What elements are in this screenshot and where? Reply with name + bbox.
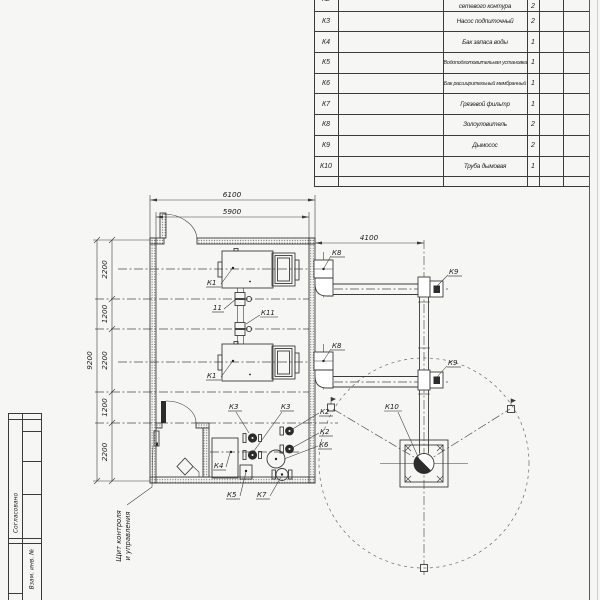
spec-row: К6 Бак расширительный мембранный 1	[314, 73, 589, 94]
tank-k6	[267, 450, 285, 468]
interior-door	[161, 401, 196, 423]
exterior-door	[163, 214, 197, 240]
chimney-k10	[380, 440, 468, 487]
panel-note-line1: Щит контроля	[115, 510, 123, 562]
dim-chain-3: 2200	[100, 351, 109, 370]
spec-row: К10 Труба дымовая 1	[314, 156, 589, 177]
spec-name: Водоподготовительная установка	[443, 53, 527, 74]
spec-qty: 2	[527, 11, 539, 32]
dim-chain-5: 2200	[100, 442, 109, 461]
control-panel-note: Щит контроля и управления	[115, 446, 153, 562]
spec-name: Дымосос	[443, 135, 527, 156]
spec-qty: 2	[527, 135, 539, 156]
spec-name: Грязевой фильтр	[443, 94, 527, 115]
label-k11: К11	[261, 309, 275, 317]
spec-pos: К9	[314, 135, 338, 156]
label-k10: К10	[385, 403, 399, 411]
dimension-left-chain: 2200 1200 2200 1200 2200	[93, 237, 150, 484]
spec-qty: 1	[527, 156, 539, 177]
label-k1-lower: К1	[207, 372, 216, 380]
pump-k2-upper	[280, 427, 294, 436]
spec-pos: К5	[314, 53, 338, 74]
strip-divider	[22, 414, 23, 600]
label-k5: К5	[227, 491, 237, 499]
label-k6: К6	[319, 441, 329, 449]
spec-qty: 1	[527, 73, 539, 94]
label-k8-b: К8	[332, 342, 342, 350]
boiler-piping	[235, 288, 252, 344]
label-k4: К4	[214, 462, 223, 470]
flue-elbow-upper	[315, 278, 333, 296]
pump-k3-upper	[243, 433, 262, 442]
label-11: 11	[213, 304, 222, 312]
spec-row: К3 Насос подпиточный 2	[314, 11, 589, 32]
title-block-replace-inv-label: Взам. инв. №	[29, 549, 36, 590]
guy-anchors	[328, 397, 517, 575]
spec-qty: 1	[527, 53, 539, 74]
label-k2-a: К2	[320, 408, 330, 416]
spec-qty: 1	[527, 94, 539, 115]
floor-drain	[177, 458, 199, 477]
dim-chain-1: 2200	[100, 260, 109, 279]
boiler-k1-lower	[218, 342, 299, 382]
spec-pos: К2	[314, 0, 338, 11]
spec-name: Насос подпиточный	[443, 11, 527, 32]
tank-k4	[212, 438, 238, 478]
label-k1-upper: К1	[207, 279, 216, 287]
dim-9200: 9200	[85, 351, 94, 370]
spec-name: Бак расширительный мембранный	[443, 73, 527, 94]
label-k7: К7	[257, 491, 267, 499]
title-block-agreed-label: Согласовано	[13, 493, 20, 533]
smoke-exhauster-k9-lower	[430, 372, 443, 388]
label-k9-b: К9	[448, 359, 458, 367]
dim-chain-2: 1200	[100, 304, 109, 323]
dim-5900: 5900	[223, 207, 242, 216]
pump-k3-lower	[243, 450, 262, 459]
spec-qty: 1	[527, 32, 539, 53]
spec-pos: К7	[314, 94, 338, 115]
spec-row: К8 Золоуловитель 2	[314, 115, 589, 136]
sheet-edge-line	[597, 0, 598, 600]
spec-pos: К10	[314, 156, 338, 177]
spec-qty: 2	[527, 115, 539, 136]
spec-row: К4 Бак запаса воды 1	[314, 32, 589, 53]
label-k8-a: К8	[332, 249, 342, 257]
spec-name: сетевого контура	[443, 0, 527, 11]
panel-note-line2: и управления	[124, 511, 132, 560]
spec-name: Бак запаса воды	[443, 32, 527, 53]
boiler-k1-upper	[218, 249, 299, 289]
drawing-sheet: 6100 5900 4100 2200 1200	[0, 0, 600, 600]
label-k3-a: К3	[229, 403, 238, 411]
spec-name: Золоуловитель	[443, 115, 527, 136]
dimension-left-overall: 9200	[85, 237, 100, 484]
dimension-flue-offset: 4100	[315, 233, 424, 245]
sheet-frame-line	[589, 0, 590, 600]
building-walls	[150, 213, 315, 483]
dim-4100: 4100	[360, 233, 379, 242]
flue-elbow-lower	[315, 370, 333, 388]
smoke-exhauster-k9-upper	[430, 281, 443, 297]
label-k9-a: К9	[449, 268, 459, 276]
spec-row: К9 Дымосос 2	[314, 135, 589, 156]
spec-designation	[338, 0, 443, 11]
spec-pos: К8	[314, 115, 338, 136]
spec-pos: К3	[314, 11, 338, 32]
spec-row: К7 Грязевой фильтр 1	[314, 94, 589, 115]
spec-pos: К4	[314, 32, 338, 53]
spec-row: К2 сетевого контура 2	[314, 0, 589, 11]
spec-row: К5 Водоподготовительная установка 1	[314, 53, 589, 74]
axis-lines	[95, 240, 510, 565]
title-block-strip: Согласовано Взам. инв. №	[8, 413, 42, 600]
spec-pos: К6	[314, 73, 338, 94]
spec-qty: 2	[527, 0, 539, 11]
spec-spacer-row	[314, 177, 589, 187]
label-k3-b: К3	[281, 403, 290, 411]
specification-table: К2 сетевого контура 2 К3 Насос подпиточн…	[314, 0, 590, 187]
spec-name: Труба дымовая	[443, 156, 527, 177]
dim-chain-4: 1200	[100, 398, 109, 417]
label-k2-b: К2	[320, 428, 330, 436]
dim-6100: 6100	[223, 190, 242, 199]
